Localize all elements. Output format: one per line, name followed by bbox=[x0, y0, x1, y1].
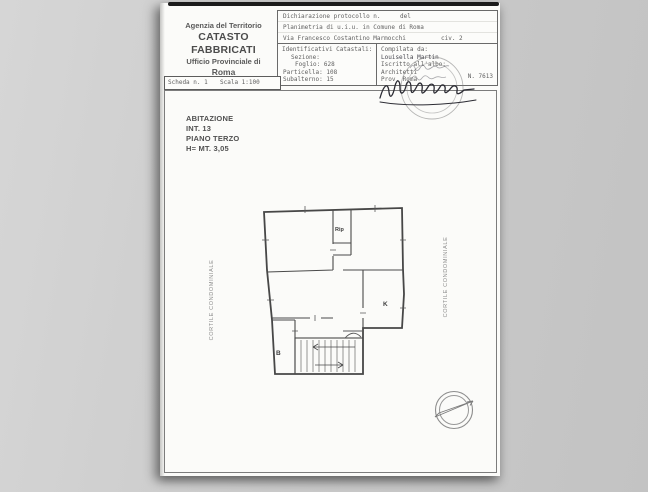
room-label-rip: Rip bbox=[335, 227, 345, 233]
opening-ticks bbox=[262, 205, 406, 331]
scan-top-edge-artifact bbox=[168, 2, 499, 6]
declaration-box: Dichiarazione protocollo n. del Planimet… bbox=[277, 10, 498, 44]
door-swing-arc bbox=[343, 331, 362, 338]
courtyard-label-right: CORTILE CONDOMINIALE bbox=[443, 237, 449, 318]
sheet-number: Scheda n. 1 bbox=[168, 77, 208, 89]
room-label-b: B bbox=[276, 350, 281, 357]
staircase bbox=[295, 338, 363, 374]
agency-line: Agenzia del Territorio bbox=[166, 21, 281, 31]
handwritten-signature bbox=[378, 76, 480, 108]
floor-plan-drawing: Rip K B bbox=[255, 200, 437, 392]
protocol-del-label: del bbox=[400, 11, 411, 22]
agency-header: Agenzia del Territorio CATASTO FABBRICAT… bbox=[166, 21, 281, 78]
cadastral-row-particella: Particella: 108 bbox=[282, 69, 376, 77]
civic-number: civ. 2 bbox=[441, 33, 463, 44]
room-label-k: K bbox=[383, 301, 388, 308]
planimetria-label: Planimetria di u.i.u. in Comune di Roma bbox=[283, 24, 424, 31]
protocol-row: Dichiarazione protocollo n. del bbox=[278, 11, 497, 22]
dwelling-floor: PIANO TERZO bbox=[186, 134, 239, 144]
street-label: Via Francesco Costantino Marmocchi bbox=[283, 35, 406, 42]
dwelling-interno: INT. 13 bbox=[186, 124, 239, 134]
drawing-scale: Scala 1:100 bbox=[220, 77, 260, 89]
protocol-label: Dichiarazione protocollo n. bbox=[283, 13, 381, 20]
cadastral-row-foglio: Foglio: 628 bbox=[282, 61, 376, 69]
cadastral-row-subalterno: Subalterno: 15 bbox=[282, 76, 376, 84]
dwelling-info: ABITAZIONE INT. 13 PIANO TERZO H= MT. 3,… bbox=[186, 114, 239, 154]
planimetria-row: Planimetria di u.i.u. in Comune di Roma bbox=[278, 22, 497, 33]
street-row: Via Francesco Costantino Marmocchi civ. … bbox=[278, 33, 497, 44]
courtyard-label-left: CORTILE CONDOMINIALE bbox=[209, 260, 215, 341]
cadastral-row-sezione: Sezione: bbox=[282, 54, 376, 62]
interior-walls bbox=[267, 209, 403, 374]
cadastral-ids-box: Identificativi Catastali: Sezione: Fogli… bbox=[277, 44, 377, 86]
dwelling-height: H= MT. 3,05 bbox=[186, 144, 239, 154]
north-arrow-icon bbox=[430, 386, 478, 434]
dwelling-type: ABITAZIONE bbox=[186, 114, 239, 124]
scanned-document-background: Agenzia del Territorio CATASTO FABBRICAT… bbox=[0, 0, 648, 492]
cadastral-title: Identificativi Catastali: bbox=[282, 46, 376, 54]
compiled-by-label: Compilata da: bbox=[381, 46, 497, 54]
agency-title: CATASTO FABBRICATI bbox=[166, 31, 281, 57]
agency-office: Ufficio Provinciale di bbox=[166, 57, 281, 67]
exterior-walls bbox=[264, 208, 404, 374]
sheet-scale-box: Scheda n. 1 Scala 1:100 bbox=[164, 76, 281, 90]
